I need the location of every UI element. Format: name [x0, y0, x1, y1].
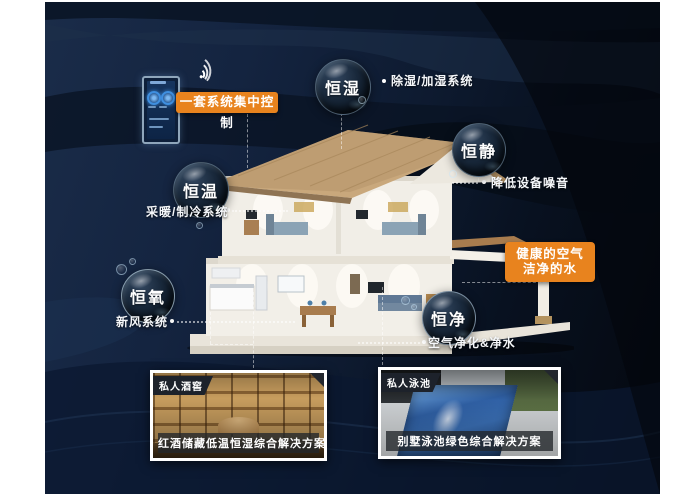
connector-line	[177, 321, 295, 323]
connector-line	[232, 210, 288, 212]
control-dial-icon	[161, 91, 175, 105]
control-dial-icon	[147, 91, 161, 105]
corner-fold	[544, 370, 558, 384]
connector-line	[382, 287, 383, 365]
decor-bubble	[401, 296, 410, 305]
photo-wine-cellar: 私人酒窖 红酒储藏低温恒湿综合解决方案	[150, 370, 327, 461]
connector-line	[253, 292, 254, 368]
connector-line	[358, 342, 420, 344]
bullet-dot	[422, 340, 426, 344]
bullet-dot	[170, 319, 174, 323]
decor-bubble	[411, 304, 417, 310]
label-air-water-purification: 空气净化&净水	[428, 334, 516, 351]
central-control-callout: 一套系统集中控制	[176, 92, 278, 113]
corner-fold	[310, 373, 324, 387]
healthy-air-line: 健康的空气	[505, 247, 595, 262]
decor-bubble	[449, 170, 457, 178]
connector-line	[210, 344, 253, 345]
caption-wine-solution: 红酒储藏低温恒湿综合解决方案	[158, 433, 319, 453]
caption-pool-solution: 别墅泳池绿色综合解决方案	[386, 431, 553, 451]
badge-private-wine-cellar: 私人酒窖	[153, 376, 213, 395]
bubble-label: 恒静	[461, 138, 497, 162]
bubble-label: 恒净	[431, 306, 467, 330]
photo-private-pool: 私人泳池 别墅泳池绿色综合解决方案	[378, 367, 561, 459]
decor-bubble	[196, 222, 203, 229]
connector-line	[341, 113, 342, 149]
smart-panel-icon	[142, 76, 180, 144]
clean-water-line: 洁净的水	[505, 262, 595, 277]
label-fresh-air-system: 新风系统	[116, 313, 168, 330]
bubble-constant-quiet: 恒静	[452, 123, 506, 177]
label-dehumidify-system: 除湿/加湿系统	[391, 72, 473, 89]
bubble-label: 恒温	[183, 178, 219, 202]
bubble-constant-humidity: 恒湿	[315, 59, 371, 115]
connector-line	[247, 114, 248, 168]
decor-bubble	[116, 264, 127, 275]
connector-line	[452, 182, 478, 184]
bullet-dot	[482, 180, 486, 184]
label-noise-reduction: 降低设备噪音	[491, 174, 569, 191]
bullet-dot	[382, 79, 386, 83]
bubble-label: 恒湿	[325, 75, 361, 99]
badge-private-pool: 私人泳池	[381, 373, 441, 392]
connector-line	[462, 282, 546, 283]
healthy-air-water-callout: 健康的空气 洁净的水	[505, 242, 595, 282]
bubble-label: 恒氧	[130, 284, 166, 308]
decor-bubble	[129, 258, 136, 265]
label-heating-cooling-system: 采暖/制冷系统	[146, 203, 228, 220]
connector-line	[210, 312, 211, 344]
panel-screen	[147, 81, 175, 139]
